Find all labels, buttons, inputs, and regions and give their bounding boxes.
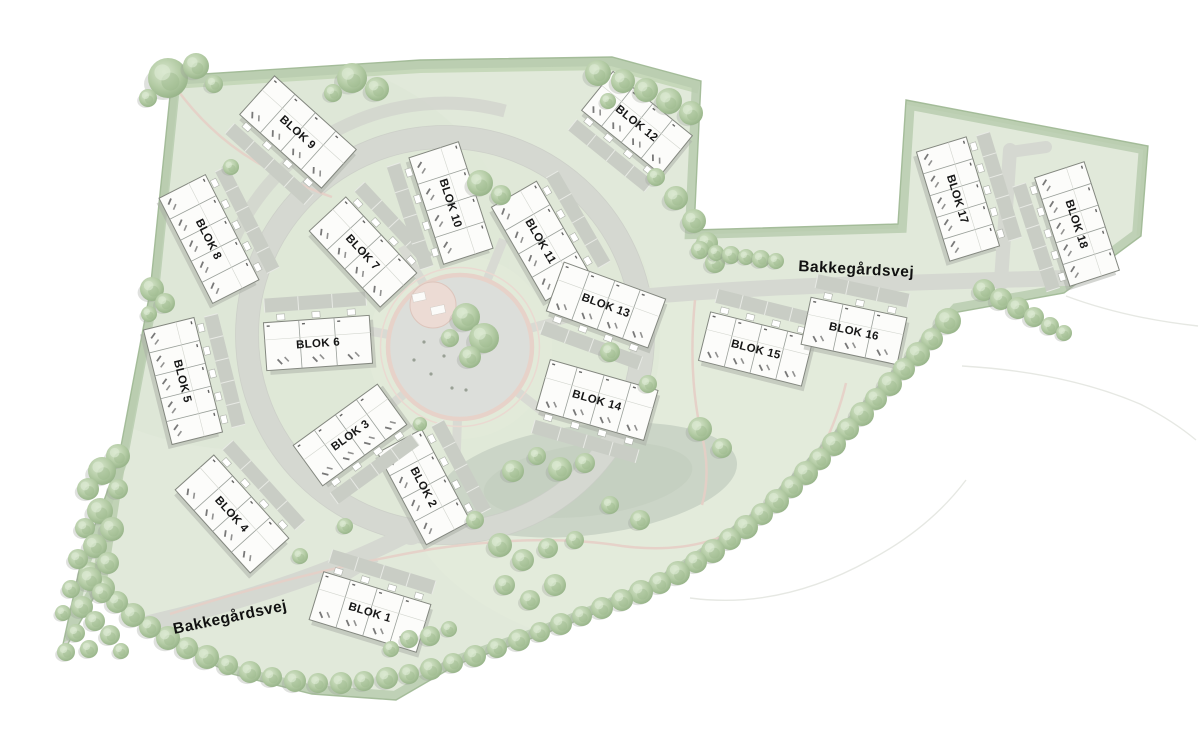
tree-highlight (471, 174, 481, 184)
unit-annotation-mark (639, 142, 641, 148)
tree-highlight (705, 543, 715, 553)
tree-highlight (653, 576, 662, 585)
tree-highlight (723, 532, 732, 541)
tree-highlight (494, 188, 502, 196)
tree-highlight (554, 617, 563, 626)
tree-highlight (187, 57, 197, 67)
tree-highlight (60, 646, 67, 653)
tree-highlight (531, 450, 538, 457)
tree-highlight (474, 328, 486, 340)
tree-highlight (199, 649, 209, 659)
unit-number-mark (302, 323, 305, 325)
tree-highlight (910, 346, 920, 356)
tree-highlight (548, 578, 557, 587)
tree-highlight (154, 64, 170, 80)
tree-highlight (468, 649, 477, 658)
terrace-shed (347, 309, 355, 316)
tree-highlight (603, 345, 611, 353)
tree-highlight (88, 614, 96, 622)
terrace-shed (855, 299, 864, 307)
tree-highlight (578, 456, 586, 464)
tree-highlight (595, 601, 604, 610)
tree-highlight (589, 64, 599, 74)
tree-highlight (144, 281, 154, 291)
tree-highlight (490, 641, 498, 649)
tree-highlight (342, 68, 354, 80)
tree-highlight (463, 350, 472, 359)
tree-highlight (104, 521, 114, 531)
unit-annotation-mark (593, 106, 595, 113)
tree-highlight (523, 593, 531, 601)
terrace-shed (823, 293, 832, 301)
terrace-shed (887, 306, 896, 314)
tree-highlight (243, 665, 252, 674)
tree-highlight (357, 674, 365, 682)
unit-annotation-mark (292, 149, 294, 156)
site-plan-canvas: BLOK 1BLOK 2BLOK 3BLOK 4BLOK 5BLOK 6BLOK… (0, 0, 1200, 732)
tree-highlight (402, 667, 410, 675)
tree-highlight (144, 309, 150, 315)
tree-highlight (143, 620, 152, 629)
unit-annotation-mark (313, 167, 315, 174)
tree-highlight (813, 452, 822, 461)
tree-highlight (670, 565, 680, 575)
tree-highlight (604, 499, 611, 506)
tree-highlight (288, 674, 297, 683)
tree-highlight (1044, 320, 1051, 327)
unit-annotation-mark (299, 152, 301, 158)
tree-highlight (160, 630, 170, 640)
tree-highlight (977, 283, 986, 292)
tree-highlight (1059, 328, 1065, 334)
tree-highlight (854, 406, 864, 416)
tree-highlight (265, 670, 273, 678)
tree-highlight (738, 519, 748, 529)
tree-highlight (841, 422, 850, 431)
tree-highlight (897, 362, 906, 371)
tree-highlight (771, 256, 777, 262)
tree-highlight (798, 465, 808, 475)
terrace-shed (312, 311, 320, 318)
tree-highlight (142, 92, 149, 99)
tree-highlight (826, 436, 836, 446)
unit-annotation-mark (272, 130, 274, 137)
tree-highlight (633, 584, 643, 594)
tree-highlight (180, 641, 189, 650)
tree-highlight (92, 461, 103, 472)
tree-highlight (81, 482, 90, 491)
tree-highlight (755, 507, 764, 516)
tree-highlight (87, 538, 97, 548)
tree-highlight (650, 171, 657, 178)
tree-highlight (689, 555, 698, 564)
tree-highlight (221, 658, 229, 666)
tree-highlight (692, 421, 702, 431)
tree-highlight (668, 190, 678, 200)
site-plan-map: BLOK 1BLOK 2BLOK 3BLOK 4BLOK 5BLOK 6BLOK… (0, 0, 1200, 732)
unit-number-mark (267, 325, 270, 327)
tree-highlight (208, 78, 215, 85)
tree-highlight (103, 628, 111, 636)
tree-highlight (506, 464, 515, 473)
unit-annotation-mark (612, 122, 614, 129)
tree-highlight (603, 96, 609, 102)
tree-highlight (533, 625, 541, 633)
tree-highlight (686, 213, 696, 223)
tree-highlight (633, 513, 641, 521)
tree-highlight (444, 624, 450, 630)
tree-highlight (369, 81, 379, 91)
plaza-pink-circle (410, 282, 456, 328)
tree-highlight (415, 419, 421, 425)
tree-highlight (110, 448, 120, 458)
tree-highlight (715, 441, 723, 449)
tree-highlight (311, 676, 319, 684)
tree-highlight (71, 552, 79, 560)
tree-highlight (660, 92, 670, 102)
tree-highlight (1027, 310, 1035, 318)
tree-highlight (994, 292, 1003, 301)
tree-highlight (340, 521, 346, 527)
tree-highlight (741, 252, 747, 258)
tree-highlight (380, 671, 389, 680)
tree-highlight (327, 87, 334, 94)
tree-highlight (82, 571, 92, 581)
tree-highlight (70, 627, 77, 634)
tree-highlight (498, 578, 506, 586)
tree-highlight (694, 244, 701, 251)
tree-highlight (1011, 301, 1020, 310)
tree-highlight (512, 633, 521, 642)
unit-annotation-mark (619, 126, 621, 132)
tree-highlight (615, 593, 624, 602)
building-blok-6: BLOK 6 (262, 291, 377, 375)
tree-highlight (469, 514, 476, 521)
tree-highlight (446, 656, 454, 664)
tree-highlight (755, 253, 762, 260)
tree-highlight (116, 646, 122, 652)
plaza-paving (388, 275, 532, 419)
tree-highlight (226, 162, 232, 168)
tree-highlight (882, 376, 892, 386)
unit-annotation-mark (632, 138, 634, 145)
tree-highlight (769, 493, 779, 503)
tree-highlight (386, 644, 392, 650)
tree-highlight (78, 521, 86, 529)
tree-highlight (334, 676, 343, 685)
tree-highlight (569, 534, 576, 541)
tree-highlight (925, 332, 934, 341)
tree-highlight (58, 608, 64, 614)
junction-parcel (992, 272, 1010, 290)
tree-highlight (95, 586, 103, 594)
unit-annotation-mark (258, 115, 260, 121)
unit-annotation-mark (599, 109, 601, 115)
unit-annotation-mark (251, 112, 253, 119)
unit-annotation-mark (319, 170, 321, 176)
tree-highlight (65, 583, 72, 590)
tree-highlight (785, 480, 794, 489)
terrace-shed (277, 314, 285, 321)
tree-highlight (711, 248, 717, 254)
tree-highlight (83, 643, 90, 650)
tree-highlight (516, 553, 525, 562)
tree-highlight (638, 82, 648, 92)
tree-highlight (456, 307, 467, 318)
tree-highlight (615, 73, 625, 83)
tree-highlight (575, 609, 583, 617)
tree-highlight (91, 502, 101, 512)
tree-highlight (492, 537, 502, 547)
parcel-road-stub (1010, 147, 1046, 152)
tree-highlight (101, 556, 110, 565)
unit-annotation-mark (659, 158, 661, 164)
tree-highlight (642, 378, 649, 385)
tree-highlight (444, 332, 451, 339)
tree-highlight (75, 600, 84, 609)
tree-highlight (552, 461, 562, 471)
tree-highlight (725, 249, 732, 256)
tree-highlight (423, 629, 431, 637)
unit-annotation-mark (278, 134, 280, 140)
tree-highlight (125, 607, 135, 617)
tree-highlight (295, 551, 301, 557)
tree-highlight (111, 482, 119, 490)
tree-highlight (158, 296, 166, 304)
unit-number-mark (337, 320, 340, 322)
tree-highlight (939, 312, 949, 322)
tree-highlight (541, 541, 549, 549)
tree-highlight (683, 105, 693, 115)
tree-highlight (869, 392, 878, 401)
unit-annotation-mark (652, 154, 654, 161)
tree-highlight (403, 633, 410, 640)
tree-highlight (424, 662, 433, 671)
